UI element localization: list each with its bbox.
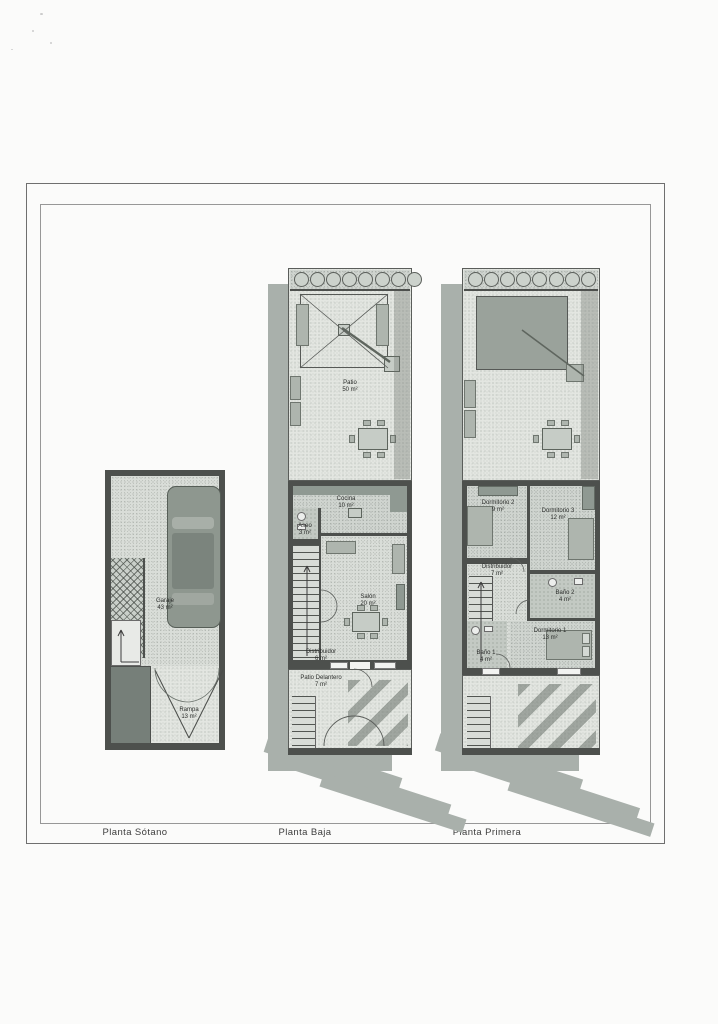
caption-planta-baja: Planta Baja [250,827,360,838]
window [482,668,500,675]
wall-planter [464,410,476,438]
planter-circle [375,272,390,287]
chair [344,618,350,626]
patio-wall-shadow [394,291,410,479]
terrace-shade [518,684,596,748]
room-label-aseo: Aseo 3 m² [288,523,322,536]
pergola-bench-right [376,304,389,346]
rampa-floor [151,666,219,743]
scanned-sheet: Garaje 43 m² Rampa 13 m² [0,0,718,1024]
door-opening [350,662,370,669]
bed [568,518,594,560]
planter-circle [342,272,357,287]
planter-circle [516,272,531,287]
sofa [326,541,356,554]
patio-table [542,428,572,450]
room-label-dormitorio1: Dormitorio 1 13 m² [520,628,580,641]
chair [547,420,555,426]
wall-planter [464,380,476,408]
room-area: 6 m² [294,656,348,663]
room-label-patio: Patio 50 m² [320,380,380,393]
room-label-garaje: Garaje 43 m² [133,598,197,611]
room-area: 4 m² [540,597,590,604]
room-name: Distribuidor [470,564,524,571]
room-area: 13 m² [157,714,221,721]
patio-table [358,428,388,450]
chair [363,452,371,458]
baja-stairs [293,545,321,660]
planter-circle [358,272,373,287]
plan-sotano: Garaje 43 m² Rampa 13 m² [105,470,225,750]
room-label-distribuidor-primera: Distribuidor 7 m² [470,564,524,577]
chair [561,452,569,458]
car-roof [172,533,214,589]
room-label-dormitorio2: Dormitorio 2 9 m² [470,500,526,513]
plan-primera: Dormitorio 2 9 m² Dormitorio 3 12 m² Dis… [462,268,600,755]
pillow [582,646,590,657]
wall-planter [290,376,301,400]
planter-circle [391,272,406,287]
chair [349,435,355,443]
planter-circles [464,270,598,291]
pillow [582,633,590,644]
room-area: 13 m² [520,635,580,642]
planter-circle [407,272,422,287]
closet [582,486,595,510]
planter-circle [549,272,564,287]
room-label-dormitorio3: Dormitorio 3 12 m² [528,508,588,521]
planter-circle [294,272,309,287]
room-name: Patio [320,380,380,387]
car-windshield [172,517,214,529]
chair [370,633,378,639]
toilet [471,626,480,635]
planter-circle [532,272,547,287]
scan-speck [11,49,13,50]
planter-circle [310,272,325,287]
salon-cocina-wall [321,533,407,536]
cocina-island [348,508,362,518]
pergola-roof [476,296,568,370]
room-label-distribuidor-baja: Distribuidor 6 m² [294,649,348,662]
chair [377,452,385,458]
front-patio-shade [348,680,408,746]
entry-stairs [292,696,316,750]
room-label-bano1: Baño 1 4 m² [464,650,508,663]
pergola-bench-left [296,304,309,346]
room-label-rampa: Rampa 13 m² [157,707,221,720]
caption-planta-sotano: Planta Sótano [80,827,190,838]
scan-speck [32,30,34,32]
room-label-bano2: Baño 2 4 m² [540,590,590,603]
dining-table [352,612,380,632]
room-name: Rampa [157,707,221,714]
chair [547,452,555,458]
toilet [297,512,306,521]
chair [377,420,385,426]
room-label-patio-delantero: Patio Delantero 7 m² [292,675,350,688]
room-name: Dormitorio 2 [470,500,526,507]
room-name: Dormitorio 3 [528,508,588,515]
sofa [392,544,405,574]
room-label-salon: Salón 20 m² [338,594,398,607]
chair [357,633,365,639]
room-area: 7 m² [292,682,350,689]
chair [574,435,580,443]
room-area: 10 m² [316,503,376,510]
room-name: Cocina [316,496,376,503]
planter-circle [581,272,596,287]
stair-landing [111,620,141,666]
front-boundary-wall [288,748,412,755]
planter-circle [326,272,341,287]
pergola-center-post [338,324,350,336]
chair [382,618,388,626]
scan-speck [50,42,52,44]
room-area: 12 m² [528,515,588,522]
room-name: Garaje [133,598,197,605]
storage-block [110,666,151,744]
room-name: Patio Delantero [292,675,350,682]
wall-planter [290,402,301,426]
planter-circle [500,272,515,287]
plan-baja: Patio 50 m² Cocina 10 m² Aseo 3 m² [288,268,412,755]
sink [574,578,583,585]
room-area: 3 m² [288,530,322,537]
room-name: Aseo [288,523,322,530]
closet [478,486,518,496]
room-name: Baño 2 [540,590,590,597]
room-label-cocina: Cocina 10 m² [316,496,376,509]
planter-circle [468,272,483,287]
planter-circle [484,272,499,287]
cocina-counter-right [390,486,407,512]
sink [484,626,493,632]
terrace-stairs [467,696,491,748]
room-name: Baño 1 [464,650,508,657]
chair [533,435,539,443]
window [330,662,348,669]
room-name: Salón [338,594,398,601]
room-area: 9 m² [470,507,526,514]
room-area: 7 m² [470,571,524,578]
planter-circle [565,272,580,287]
chair [363,420,371,426]
patio-wall-shadow [581,291,598,479]
room-area: 20 m² [338,601,398,608]
toilet [548,578,557,587]
window [557,668,581,675]
room-name: Distribuidor [294,649,348,656]
scan-speck [40,13,43,15]
room-area: 4 m² [464,657,508,664]
chair [561,420,569,426]
room-area: 43 m² [133,605,197,612]
room-name: Dormitorio 1 [520,628,580,635]
planter-circles [290,270,410,291]
front-boundary-wall [462,748,600,755]
window [374,662,396,669]
room-area: 50 m² [320,387,380,394]
